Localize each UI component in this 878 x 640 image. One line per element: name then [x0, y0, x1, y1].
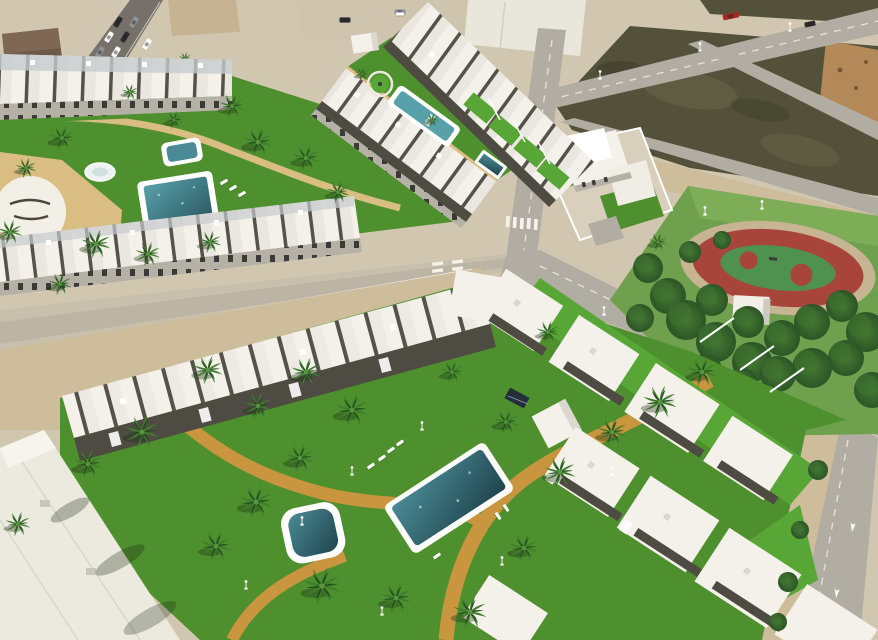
town-building — [168, 0, 240, 36]
townhouse-row-north — [0, 54, 232, 124]
screenshot-stage: Aerial 3D render of a Mediterranean new-… — [0, 0, 878, 640]
utility-cube — [351, 32, 379, 53]
aerial-render: Aerial 3D render of a Mediterranean new-… — [0, 0, 878, 640]
